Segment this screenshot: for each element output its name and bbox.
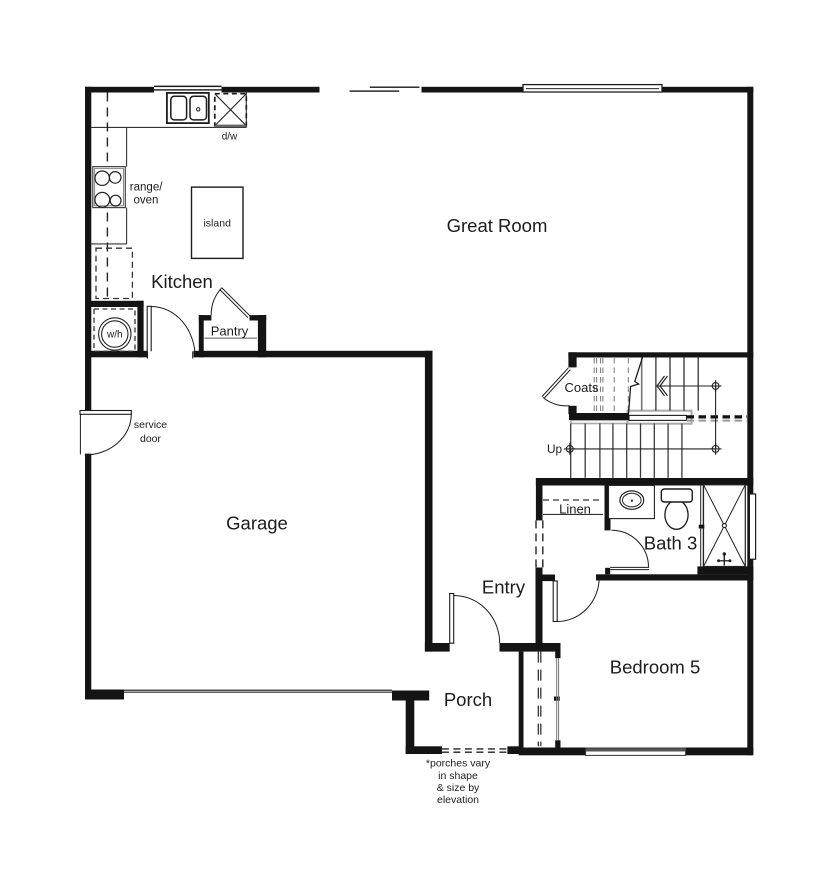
svg-text:island: island	[203, 217, 231, 229]
svg-text:Bedroom 5: Bedroom 5	[610, 656, 701, 677]
svg-text:d/w: d/w	[222, 131, 238, 142]
svg-text:Up: Up	[547, 442, 563, 456]
svg-text:Kitchen: Kitchen	[151, 271, 213, 292]
svg-text:Garage: Garage	[226, 513, 288, 534]
svg-text:Linen: Linen	[559, 502, 591, 517]
svg-text:in shape: in shape	[438, 770, 478, 782]
svg-text:oven: oven	[134, 194, 159, 206]
svg-text:range/: range/	[130, 182, 163, 194]
svg-text:Bath 3: Bath 3	[644, 533, 698, 554]
svg-text:service: service	[134, 419, 167, 431]
svg-text:Entry: Entry	[482, 577, 526, 598]
svg-text:Coats: Coats	[565, 380, 599, 395]
svg-text:Pantry: Pantry	[211, 324, 249, 339]
svg-text:door: door	[140, 433, 162, 445]
svg-text:Great Room: Great Room	[447, 215, 548, 236]
svg-text:w/h: w/h	[106, 330, 123, 341]
svg-text:& size by: & size by	[437, 782, 480, 794]
svg-text:*porches vary: *porches vary	[426, 758, 491, 770]
svg-text:elevation: elevation	[437, 794, 479, 806]
svg-text:Porch: Porch	[444, 689, 492, 710]
